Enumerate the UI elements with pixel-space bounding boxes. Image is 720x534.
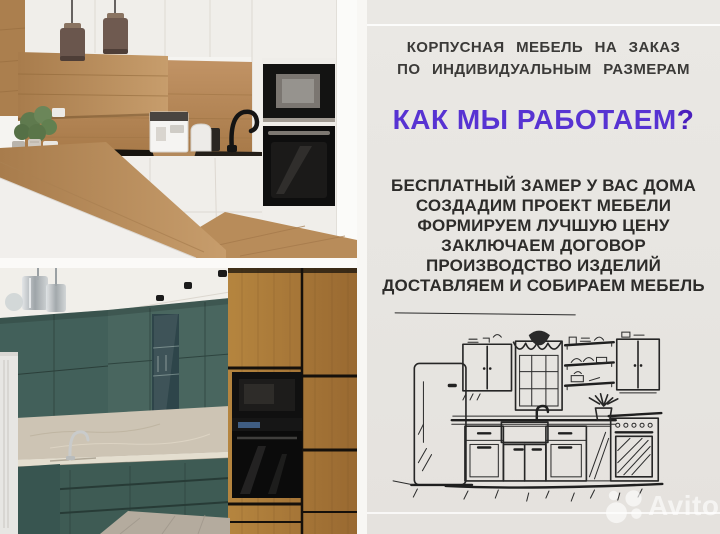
step-line-3: ФОРМИРУЕМ ЛУЧШУЮ ЦЕНУ: [367, 216, 720, 236]
photo-divider: [0, 258, 357, 268]
info-panel: КОРПУСНАЯ МЕБЕЛЬ НА ЗАКАЗ ПО ИНДИВИДУАЛЬ…: [357, 0, 720, 534]
kitchen-sketch: [387, 310, 720, 504]
kitchen-sketch-drawing: [387, 310, 720, 504]
teal-oak-kitchen-illustration: [0, 268, 357, 534]
steps-list: БЕСПЛАТНЫЙ ЗАМЕР У ВАС ДОМА СОЗДАДИМ ПРО…: [367, 176, 720, 296]
question-heading: КАК МЫ РАБОТАЕМ?: [367, 104, 720, 136]
heading-line-1: КОРПУСНАЯ МЕБЕЛЬ НА ЗАКАЗ: [367, 37, 720, 59]
step-line-5: ПРОИЗВОДСТВО ИЗДЕЛИЙ: [367, 256, 720, 276]
step-line-6: ДОСТАВЛЯЕМ И СОБИРАЕМ МЕБЕЛЬ: [367, 276, 720, 296]
step-line-1: БЕСПЛАТНЫЙ ЗАМЕР У ВАС ДОМА: [367, 176, 720, 196]
kitchen-photo-top: [0, 0, 357, 258]
step-line-4: ЗАКЛЮЧАЕМ ДОГОВОР: [367, 236, 720, 256]
furniture-ad-image: КОРПУСНАЯ МЕБЕЛЬ НА ЗАКАЗ ПО ИНДИВИДУАЛЬ…: [0, 0, 720, 534]
white-oak-kitchen-illustration: [0, 0, 357, 258]
kitchen-photo-bottom: [0, 268, 357, 534]
bottom-divider-line: [367, 512, 720, 514]
question-text: КАК МЫ РАБОТАЕМ: [393, 104, 677, 135]
top-divider-line: [367, 24, 720, 26]
main-heading: КОРПУСНАЯ МЕБЕЛЬ НА ЗАКАЗ ПО ИНДИВИДУАЛЬ…: [367, 37, 720, 81]
heading-line-2: ПО ИНДИВИДУАЛЬНЫМ РАЗМЕРАМ: [367, 59, 720, 81]
step-line-2: СОЗДАДИМ ПРОЕКТ МЕБЕЛИ: [367, 196, 720, 216]
question-mark: ?: [677, 104, 695, 135]
